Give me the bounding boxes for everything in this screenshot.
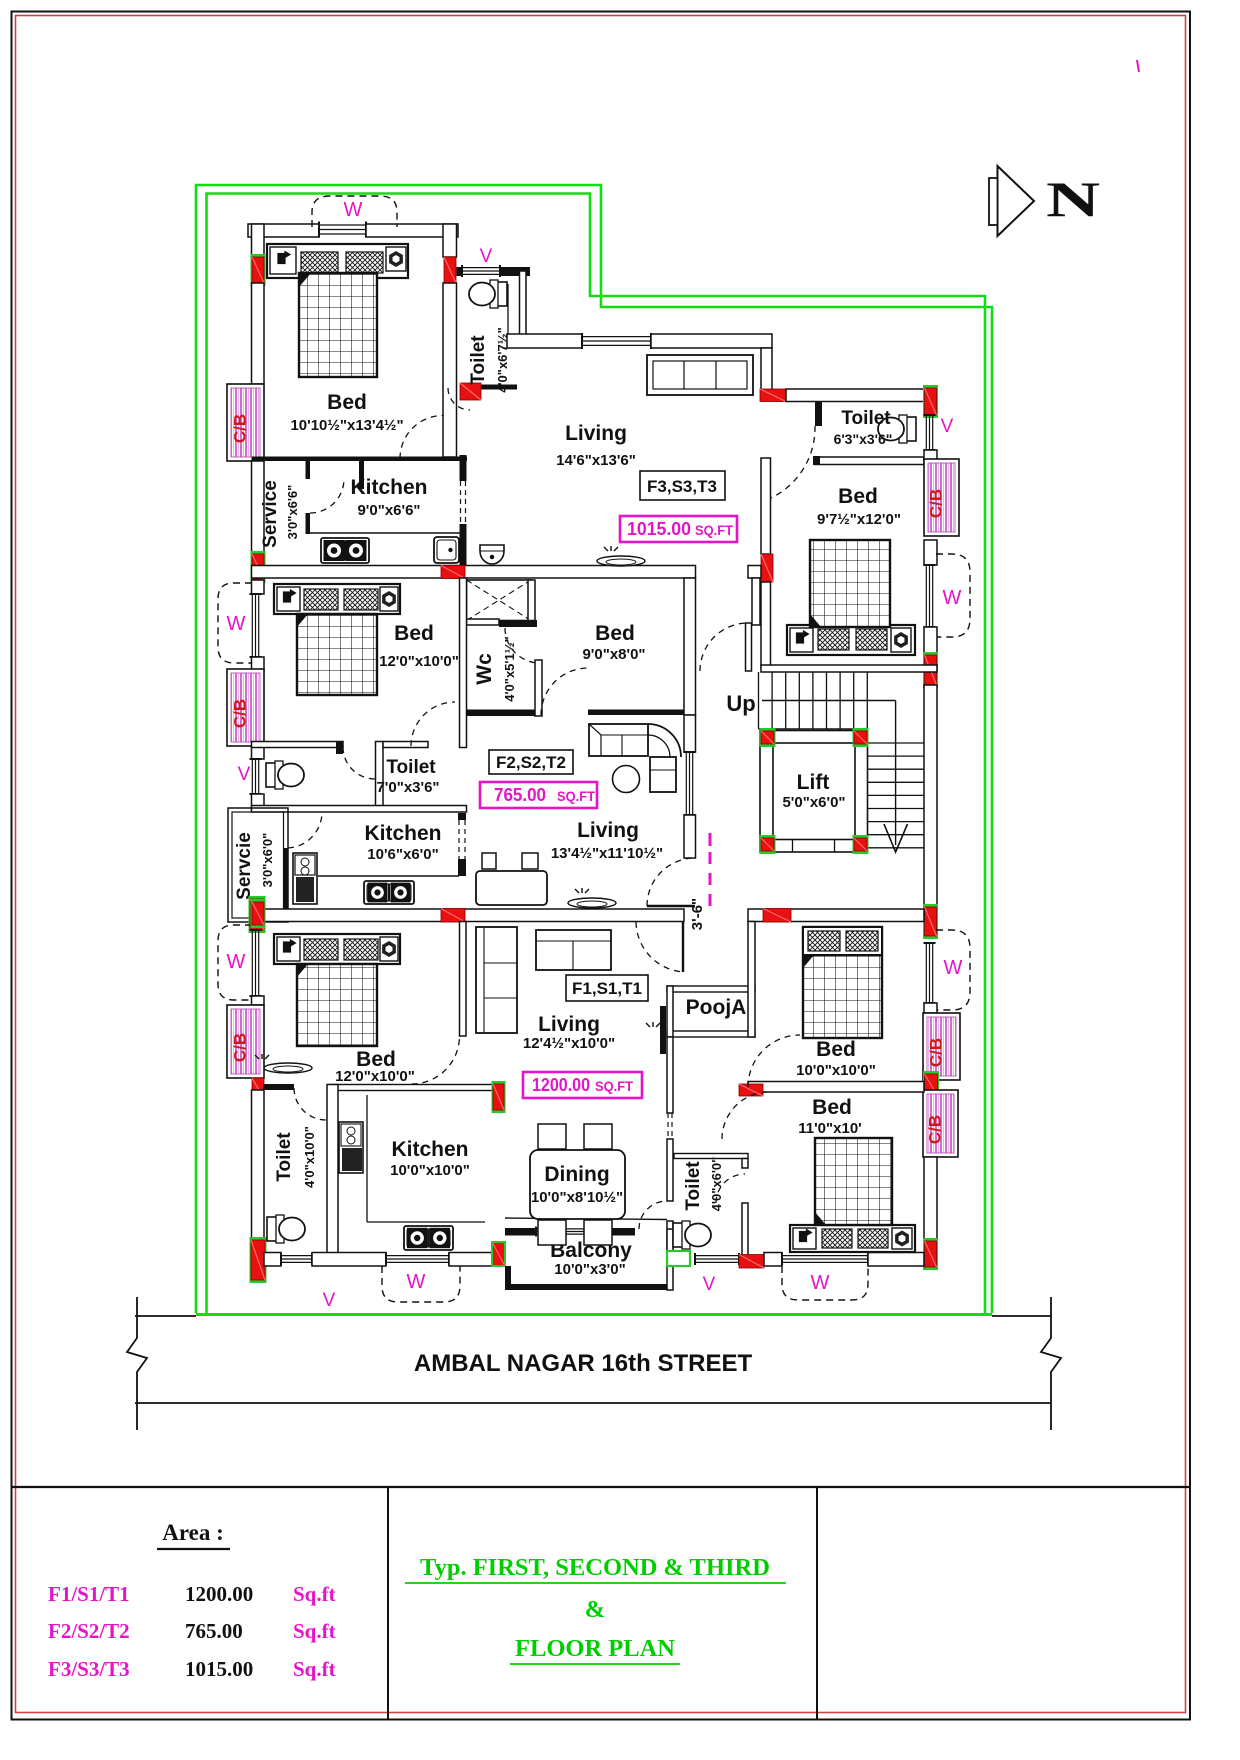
svg-text:F1/S1/T1: F1/S1/T1 (48, 1582, 130, 1606)
svg-text:C/B: C/B (926, 1115, 945, 1144)
svg-text:F1,S1,T1: F1,S1,T1 (572, 979, 642, 998)
svg-text:SQ.FT: SQ.FT (595, 1079, 634, 1094)
svg-text:F2,S2,T2: F2,S2,T2 (496, 753, 566, 772)
svg-text:6'3"x3'6": 6'3"x3'6" (834, 431, 893, 447)
svg-text:Sq.ft: Sq.ft (293, 1619, 336, 1643)
svg-text:Bed: Bed (595, 622, 635, 645)
svg-text:Sq.ft: Sq.ft (293, 1657, 336, 1681)
svg-text:5'0"x6'0": 5'0"x6'0" (782, 794, 845, 811)
svg-text:3'-6": 3'-6" (689, 898, 706, 930)
svg-text:10'0"x8'10½": 10'0"x8'10½" (531, 1189, 623, 1206)
svg-text:10'0"x3'0": 10'0"x3'0" (554, 1261, 625, 1278)
svg-text:Toilet: Toilet (386, 757, 436, 778)
svg-text:10'0"x10'0": 10'0"x10'0" (390, 1162, 470, 1179)
svg-text:Living: Living (577, 819, 639, 842)
svg-text:W: W (227, 951, 246, 973)
svg-text:Typ. FIRST, SECOND & THIRD: Typ. FIRST, SECOND & THIRD (420, 1554, 770, 1581)
svg-text:1015.00: 1015.00 (627, 519, 691, 539)
svg-text:SQ.FT: SQ.FT (695, 523, 734, 538)
svg-text:Living: Living (538, 1013, 600, 1036)
svg-text:Lift: Lift (797, 771, 830, 794)
svg-text:12'0"x10'0": 12'0"x10'0" (335, 1068, 415, 1085)
svg-text:Bed: Bed (394, 622, 434, 645)
svg-text:9'0"x8'0": 9'0"x8'0" (582, 646, 645, 663)
svg-text:3'0"x6'6": 3'0"x6'6" (285, 485, 300, 540)
svg-text:W: W (943, 587, 962, 609)
svg-text:10'10½"x13'4½": 10'10½"x13'4½" (290, 417, 403, 434)
svg-text:765.00: 765.00 (185, 1619, 243, 1643)
svg-text:Wc: Wc (473, 653, 496, 685)
svg-text:Servcie: Servcie (234, 832, 255, 900)
svg-text:10'6"x6'0": 10'6"x6'0" (367, 846, 438, 863)
svg-text:C/B: C/B (231, 1033, 250, 1062)
svg-text:V: V (941, 416, 954, 437)
svg-text:4'0"x6'0": 4'0"x6'0" (709, 1157, 724, 1212)
svg-text:AMBAL NAGAR 16th STREET: AMBAL NAGAR 16th STREET (414, 1350, 753, 1377)
svg-text:Kitchen: Kitchen (364, 822, 441, 845)
svg-text:Kitchen: Kitchen (350, 476, 427, 499)
svg-text:PoojA: PoojA (686, 996, 747, 1019)
svg-text:Sq.ft: Sq.ft (293, 1582, 336, 1606)
svg-text:1200.00: 1200.00 (185, 1582, 253, 1606)
svg-text:F3/S3/T3: F3/S3/T3 (48, 1657, 130, 1681)
svg-text:F3,S3,T3: F3,S3,T3 (647, 477, 717, 496)
svg-text:SQ.FT: SQ.FT (557, 789, 596, 804)
svg-text:Bed: Bed (816, 1038, 856, 1061)
svg-text:Service: Service (260, 480, 281, 548)
svg-text:Toilet: Toilet (274, 1132, 295, 1182)
svg-text:Bed: Bed (327, 391, 367, 414)
svg-text:V: V (323, 1290, 336, 1311)
svg-text:V: V (238, 764, 251, 785)
svg-text:C/B: C/B (927, 1038, 946, 1067)
svg-text:Kitchen: Kitchen (391, 1138, 468, 1161)
svg-text:3'0"x6'0": 3'0"x6'0" (260, 833, 275, 888)
svg-text:Toilet: Toilet (841, 408, 891, 429)
svg-text:10'0"x10'0": 10'0"x10'0" (796, 1062, 876, 1079)
svg-text:765.00: 765.00 (494, 785, 546, 805)
svg-text:Bed: Bed (812, 1096, 852, 1119)
svg-text:1200.00: 1200.00 (532, 1075, 590, 1095)
svg-text:13'4½"x11'10½": 13'4½"x11'10½" (551, 845, 663, 862)
svg-text:N: N (1046, 171, 1100, 227)
svg-text:W: W (944, 957, 963, 979)
svg-text:12'4½"x10'0": 12'4½"x10'0" (523, 1035, 615, 1052)
svg-text:W: W (811, 1272, 830, 1294)
svg-text:9'0"x6'6": 9'0"x6'6" (357, 502, 420, 519)
svg-text:Dining: Dining (544, 1163, 609, 1186)
svg-text:11'0"x10': 11'0"x10' (798, 1120, 861, 1137)
svg-text:Toilet: Toilet (468, 335, 489, 385)
svg-text:W: W (344, 199, 363, 221)
svg-text:12'0"x10'0": 12'0"x10'0" (379, 653, 459, 670)
svg-text:Bed: Bed (838, 485, 878, 508)
svg-text:FLOOR PLAN: FLOOR PLAN (515, 1635, 675, 1662)
svg-text:V: V (480, 246, 493, 267)
svg-text:Up: Up (726, 691, 755, 716)
svg-text:1015.00: 1015.00 (185, 1657, 253, 1681)
svg-text:7'0"x3'6": 7'0"x3'6" (376, 779, 439, 796)
svg-text:4'0"x6'7½": 4'0"x6'7½" (495, 327, 510, 393)
svg-text:W: W (407, 1271, 426, 1293)
svg-text:14'6"x13'6": 14'6"x13'6" (556, 452, 636, 469)
svg-text:C/B: C/B (927, 489, 946, 518)
svg-text:F2/S2/T2: F2/S2/T2 (48, 1619, 130, 1643)
svg-text:V: V (703, 1274, 716, 1295)
svg-text:9'7½"x12'0": 9'7½"x12'0" (817, 511, 901, 528)
svg-text:W: W (227, 613, 246, 635)
svg-text:&: & (585, 1596, 605, 1623)
svg-text:4'0"x5'1½": 4'0"x5'1½" (502, 636, 517, 702)
svg-text:C/B: C/B (231, 699, 250, 728)
svg-text:Living: Living (565, 422, 627, 445)
svg-text:Toilet: Toilet (683, 1161, 704, 1211)
svg-text:C/B: C/B (231, 414, 250, 443)
svg-text:Area :: Area : (162, 1520, 224, 1545)
svg-text:4'0"x10'0": 4'0"x10'0" (302, 1126, 317, 1188)
